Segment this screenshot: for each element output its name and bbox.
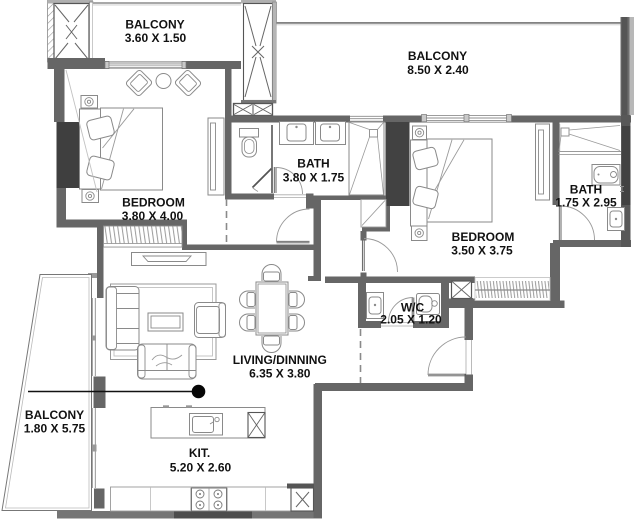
svg-text:3.80 X 1.75: 3.80 X 1.75 xyxy=(283,171,345,185)
svg-text:6.35 X 3.80: 6.35 X 3.80 xyxy=(249,367,311,381)
svg-text:BEDROOM: BEDROOM xyxy=(452,230,515,244)
svg-text:3.50 X 3.75: 3.50 X 3.75 xyxy=(451,244,513,258)
svg-text:2.05 X 1.20: 2.05 X 1.20 xyxy=(380,313,442,327)
svg-text:8.50 X 2.40: 8.50 X 2.40 xyxy=(407,63,469,77)
svg-text:BEDROOM: BEDROOM xyxy=(122,196,185,210)
svg-text:BATH: BATH xyxy=(297,157,329,171)
svg-text:1.75 X 2.95: 1.75 X 2.95 xyxy=(555,195,617,209)
svg-text:BALCONY: BALCONY xyxy=(408,49,467,63)
svg-text:BALCONY: BALCONY xyxy=(25,408,84,422)
svg-text:1.80 X 5.75: 1.80 X 5.75 xyxy=(24,421,86,435)
svg-text:3.60 X 1.50: 3.60 X 1.50 xyxy=(125,31,187,45)
svg-text:3.80 X 4.00: 3.80 X 4.00 xyxy=(122,209,184,223)
svg-text:LIVING/DINNING: LIVING/DINNING xyxy=(233,353,327,367)
svg-text:BALCONY: BALCONY xyxy=(125,17,184,31)
svg-text:KIT.: KIT. xyxy=(189,446,210,460)
svg-text:BATH: BATH xyxy=(570,182,602,196)
svg-text:5.20 X 2.60: 5.20 X 2.60 xyxy=(170,461,232,475)
